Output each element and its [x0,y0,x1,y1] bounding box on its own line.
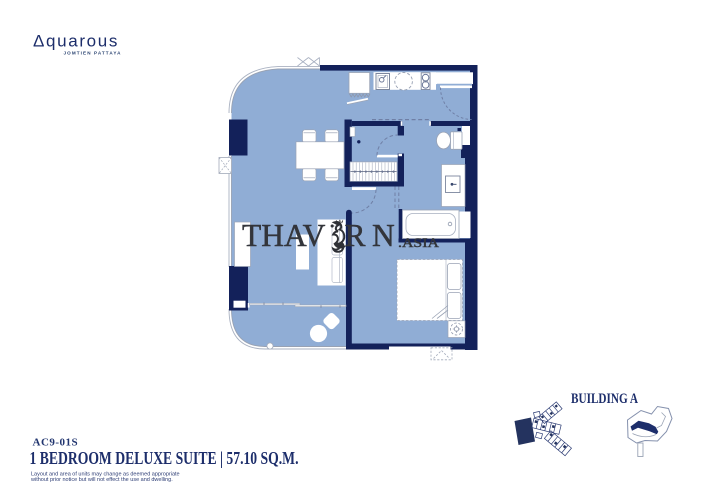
svg-text:1 BEDROOM DELUXE SUITE | 57.10: 1 BEDROOM DELUXE SUITE | 57.10 SQ.M. [30,448,299,468]
svg-text:.ASIA: .ASIA [398,235,440,250]
svg-text:without prior notice but will: without prior notice but will not effect… [30,477,173,483]
svg-text:AC9-01S: AC9-01S [33,437,79,449]
svg-text:JOMTIEN PATTAYA: JOMTIEN PATTAYA [64,51,122,56]
svg-text:THAV: THAV [242,218,326,253]
svg-text:RN: RN [345,218,402,253]
svg-text:BUILDING A: BUILDING A [571,391,638,407]
svg-text:Δquarous: Δquarous [33,32,119,51]
